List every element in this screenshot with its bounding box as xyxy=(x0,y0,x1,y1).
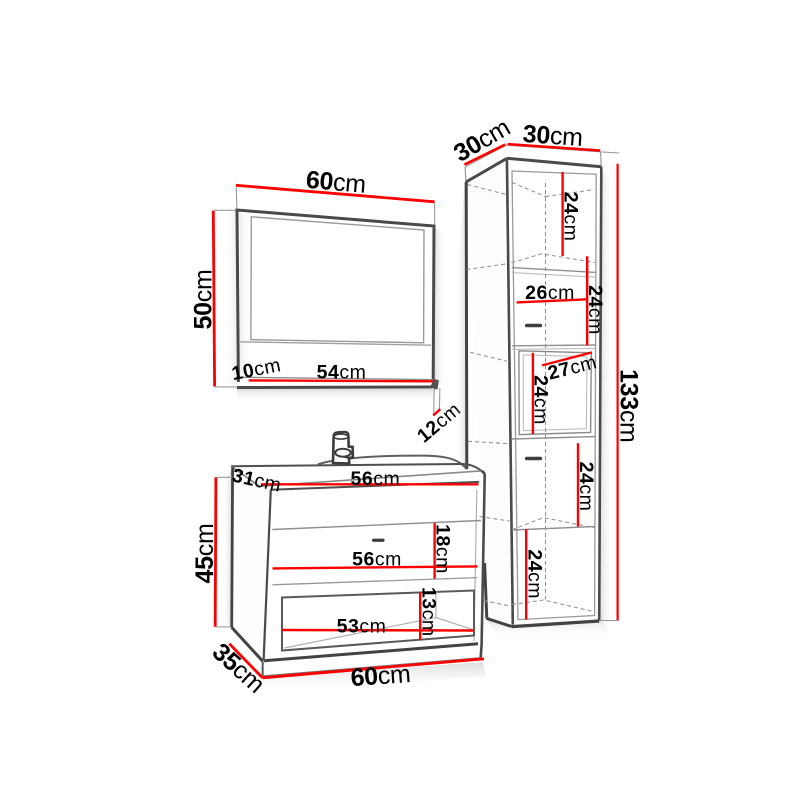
svg-text:45cm: 45cm xyxy=(191,524,219,584)
svg-text:24cm: 24cm xyxy=(530,375,552,425)
svg-text:56cm: 56cm xyxy=(351,468,401,490)
svg-text:60cm: 60cm xyxy=(305,166,367,199)
svg-text:26cm: 26cm xyxy=(525,282,575,304)
svg-text:30cm: 30cm xyxy=(522,120,584,152)
svg-text:50cm: 50cm xyxy=(189,270,217,330)
svg-text:13cm: 13cm xyxy=(417,587,439,637)
svg-text:18cm: 18cm xyxy=(432,524,454,574)
svg-text:53cm: 53cm xyxy=(337,616,387,638)
svg-text:133cm: 133cm xyxy=(615,369,643,443)
svg-text:60cm: 60cm xyxy=(350,660,412,692)
svg-text:24cm: 24cm xyxy=(559,192,581,242)
svg-text:54cm: 54cm xyxy=(317,362,367,384)
svg-text:24cm: 24cm xyxy=(575,462,597,512)
svg-text:24cm: 24cm xyxy=(584,285,606,335)
svg-text:56cm: 56cm xyxy=(352,549,402,571)
svg-text:24cm: 24cm xyxy=(524,549,546,599)
